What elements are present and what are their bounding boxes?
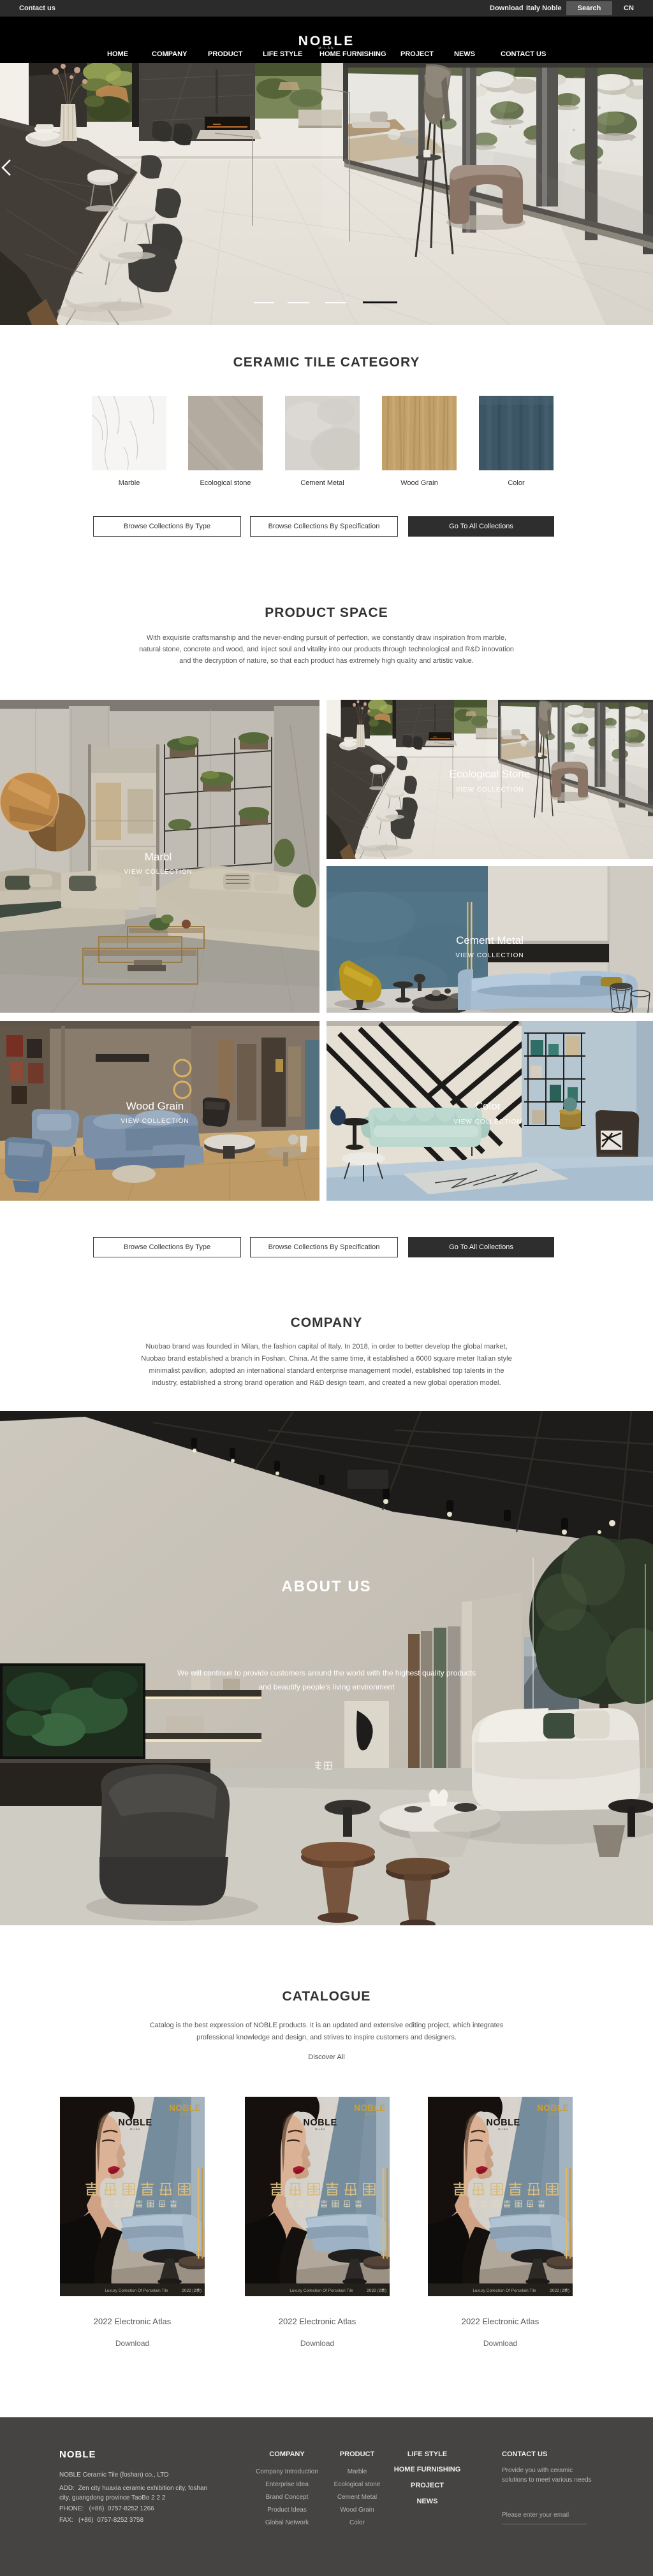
svg-text:VIEW COLLECTION: VIEW COLLECTION — [121, 1118, 189, 1125]
svg-text:VIEW COLLECTION: VIEW COLLECTION — [124, 869, 192, 876]
svg-text:Wood Grain: Wood Grain — [126, 1100, 184, 1112]
svg-text:VIEW COLLECTION: VIEW COLLECTION — [453, 1118, 522, 1125]
svg-text:Marbl: Marbl — [145, 851, 172, 863]
svg-text:VIEW COLLECTION: VIEW COLLECTION — [455, 952, 524, 959]
svg-text:Color: Color — [475, 1100, 501, 1112]
svg-text:Cement Metal: Cement Metal — [456, 934, 524, 946]
